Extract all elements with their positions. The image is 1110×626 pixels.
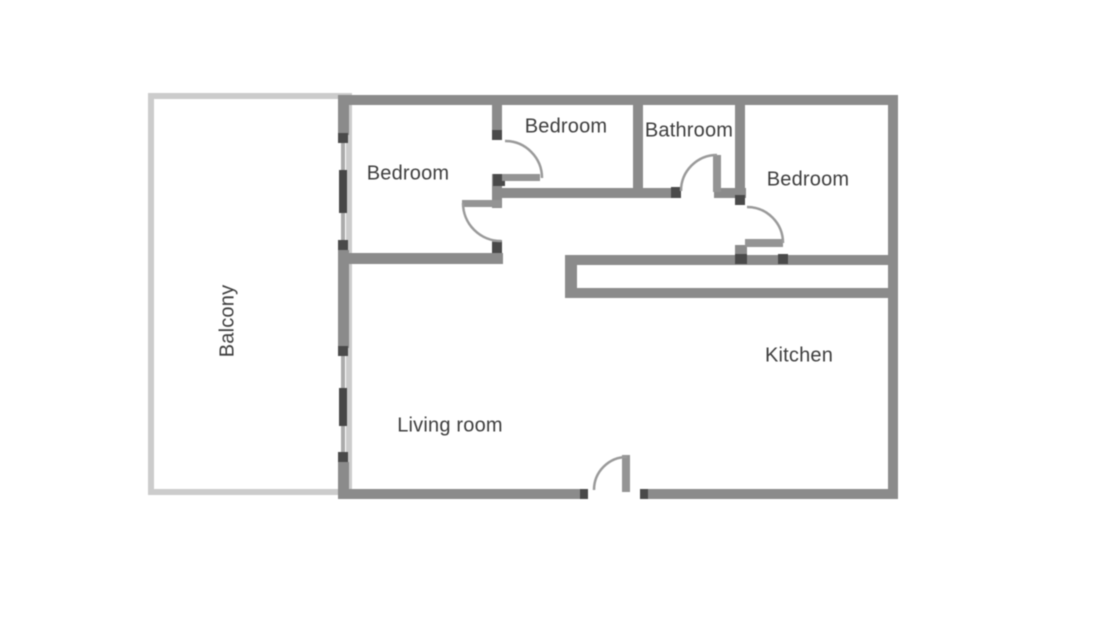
room-label-bedroom-left: Bedroom — [367, 163, 450, 186]
door-swing-arcs — [0, 0, 1110, 626]
door-arc-top-bedroom — [505, 141, 542, 178]
floor-plan: Balcony Bedroom Bedroom Bathroom Bedroom… — [0, 0, 1110, 626]
door-arc-right-bedroom — [747, 207, 783, 243]
room-label-balcony: Balcony — [217, 285, 240, 358]
door-arc-left-bedroom — [463, 203, 501, 241]
room-label-living-room: Living room — [397, 415, 503, 438]
room-label-bedroom-right: Bedroom — [767, 169, 850, 192]
room-label-bathroom: Bathroom — [645, 120, 733, 143]
door-arc-bathroom — [681, 155, 717, 191]
room-label-bedroom-top: Bedroom — [525, 116, 608, 139]
floor-plan-canvas: Balcony Bedroom Bedroom Bathroom Bedroom… — [0, 0, 1110, 626]
room-label-kitchen: Kitchen — [765, 345, 833, 368]
door-arc-entrance — [594, 457, 627, 490]
